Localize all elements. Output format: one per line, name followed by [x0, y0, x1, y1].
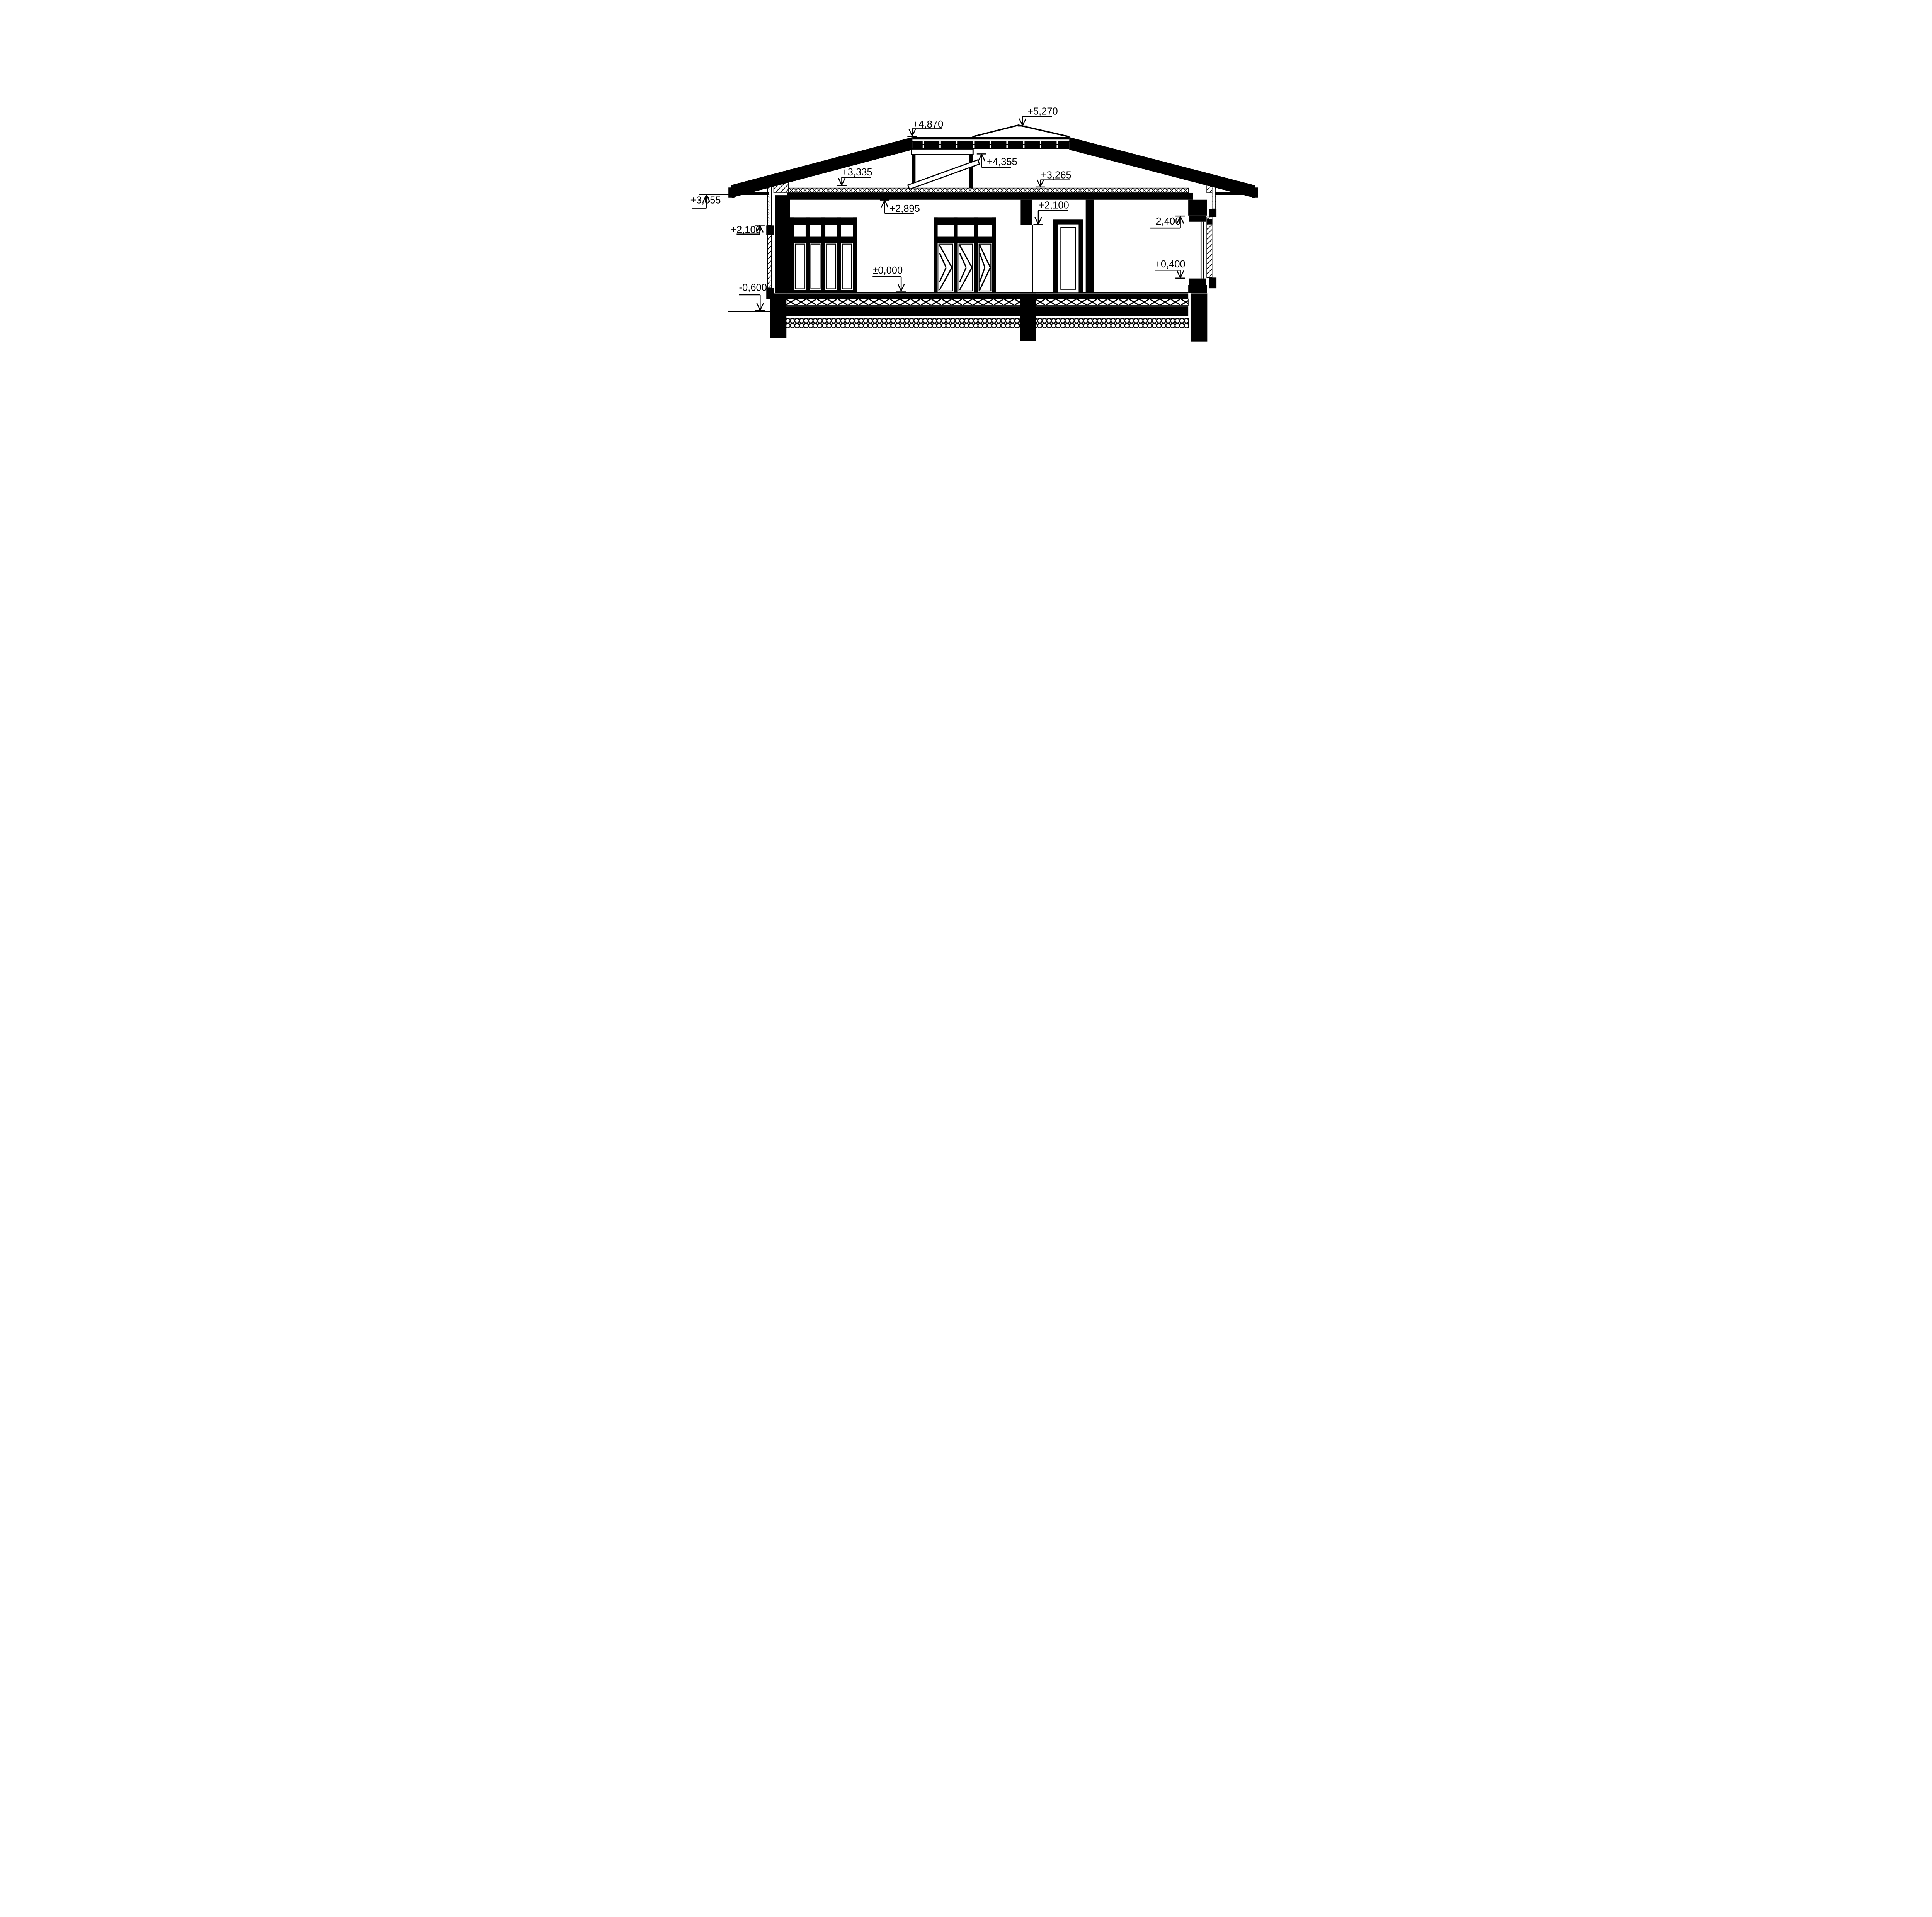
dim-label: +2,100	[1039, 200, 1069, 211]
foundation-right	[1191, 293, 1207, 341]
partition-wall	[1086, 200, 1094, 292]
left-window-mullion	[821, 217, 825, 292]
right-window-glazing	[1201, 222, 1203, 279]
floor-structure	[786, 292, 1188, 328]
dim-label: +5,270	[1027, 106, 1058, 117]
dim-label: +2,100	[731, 225, 761, 235]
left-window-mullion	[853, 217, 857, 292]
right-window-sill-frame	[1189, 279, 1206, 285]
dim-eave: +3,055	[690, 194, 731, 208]
interior-walls	[1020, 200, 1094, 292]
right-head-block	[1209, 209, 1216, 217]
dim-label: +3,055	[690, 195, 721, 206]
dim-ceiling-ins-right: +3,265	[1036, 170, 1071, 187]
dim-label: +4,870	[913, 119, 943, 130]
left-fascia	[728, 187, 732, 197]
dim-ceiling-slab: +2,895	[880, 200, 920, 214]
dim-label: +4,355	[987, 156, 1017, 167]
left-sill-block	[766, 288, 774, 299]
left-window-mullion	[790, 217, 794, 292]
ceiling-insulation-hatch	[789, 188, 1188, 193]
door-transom-bar	[934, 237, 996, 243]
left-window-mullion	[837, 217, 841, 292]
shaft-header	[912, 149, 973, 154]
dim-label: +0,400	[1155, 259, 1185, 270]
drawing-sheet: +5,270 +4,870 +4,355 +3,335 +3,265 +3,05…	[657, 0, 1275, 437]
attic-ladder	[908, 160, 979, 189]
ceiling	[787, 188, 1193, 200]
dim-grade: -0,600	[739, 282, 767, 311]
door-swing-marks	[940, 245, 990, 290]
dim-label: +2,895	[889, 203, 920, 214]
roof-left-gap-line	[730, 141, 913, 190]
left-fascia-foot	[732, 195, 735, 198]
dim-label: +3,335	[842, 167, 872, 178]
ridge-outline	[972, 125, 1069, 137]
right-brick-strip	[1207, 217, 1212, 277]
gravel-hatch	[786, 318, 1188, 328]
roof-flat-covering	[912, 137, 1069, 139]
floor-base-slab	[786, 306, 1188, 316]
skylight-shaft	[908, 149, 979, 189]
left-exterior-wall	[766, 180, 790, 299]
foundation-left	[770, 293, 786, 338]
left-window-light	[811, 244, 820, 289]
left-wall-brick-veneer	[767, 235, 771, 288]
dim-left-lintel: +2,100	[731, 225, 765, 235]
patio-folding-doors	[934, 217, 996, 292]
dim-label: ±0,000	[872, 265, 903, 276]
left-lintel-block	[766, 225, 774, 235]
dim-right-window-sill: +0,400	[1155, 259, 1185, 278]
door-mullion	[974, 217, 978, 292]
floor-slab	[786, 293, 1188, 299]
right-eave-soffit	[1215, 192, 1255, 195]
door-panel	[979, 244, 991, 291]
right-window	[1189, 216, 1206, 285]
door-mullion	[954, 217, 957, 292]
wall-above-door-opening	[1020, 200, 1032, 225]
dim-label: +2,400	[1150, 216, 1181, 227]
door-head-bar	[934, 217, 996, 225]
dim-roof-flat: +4,870	[907, 119, 943, 136]
left-window-mullion	[806, 217, 810, 292]
dim-ridge: +5,270	[1018, 106, 1058, 126]
roof-rafter-marks	[912, 141, 1069, 149]
left-eave-soffit	[731, 192, 769, 195]
right-wall-bracket	[1207, 219, 1212, 225]
left-wall-inner-leaf	[775, 195, 790, 293]
ceiling-slab	[787, 193, 1193, 200]
door-mullion	[934, 217, 937, 292]
right-window-head-frame	[1189, 216, 1206, 222]
left-window-light	[842, 244, 852, 289]
right-fascia	[1254, 187, 1258, 197]
roof-right-gap-line	[1069, 141, 1256, 190]
left-window-light	[827, 244, 836, 289]
right-wall-below-sill	[1188, 285, 1207, 293]
dim-label: -0,600	[739, 282, 767, 293]
dim-right-window-head: +2,400	[1150, 216, 1185, 228]
door-mullion	[992, 217, 996, 292]
floor-insulation-hatch	[786, 299, 1188, 306]
foundation-middle	[1020, 293, 1036, 341]
right-sill-block-ext	[1209, 277, 1216, 288]
left-window-light	[795, 244, 804, 289]
left-window	[790, 217, 857, 292]
shaft-post-right	[969, 154, 973, 188]
right-fascia-foot	[1252, 195, 1254, 198]
right-wall-above-window	[1188, 200, 1207, 216]
dim-ceiling-ins-left: +3,335	[837, 167, 872, 185]
left-wall-insulation-strip	[767, 184, 771, 225]
annotations: +5,270 +4,870 +4,355 +3,335 +3,265 +3,05…	[690, 106, 1185, 310]
dim-label: +3,265	[1041, 170, 1071, 181]
dim-shaft-header: +4,355	[977, 154, 1017, 167]
dim-floor-level: ±0,000	[872, 265, 906, 291]
house-section-drawing: +5,270 +4,870 +4,355 +3,335 +3,265 +3,05…	[657, 0, 1275, 437]
